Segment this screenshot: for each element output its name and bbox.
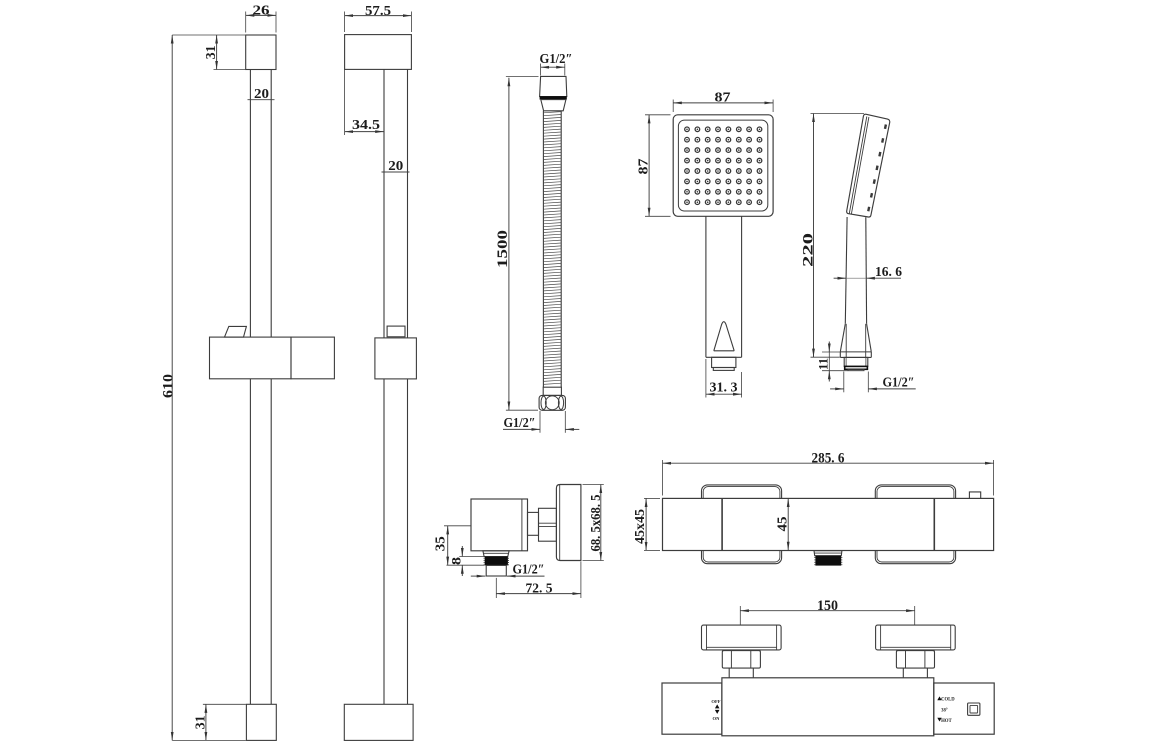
- svg-text:HOT: HOT: [941, 719, 952, 724]
- svg-text:87: 87: [636, 159, 651, 175]
- svg-text:38°: 38°: [941, 708, 948, 713]
- svg-text:1500: 1500: [495, 230, 511, 268]
- svg-text:G1/2″: G1/2″: [504, 416, 536, 431]
- svg-text:285. 6: 285. 6: [812, 450, 845, 466]
- svg-text:G1/2″: G1/2″: [883, 375, 915, 390]
- svg-text:45x45: 45x45: [633, 509, 648, 544]
- svg-text:G1/2″: G1/2″: [540, 52, 573, 67]
- svg-text:11: 11: [816, 358, 831, 370]
- svg-text:150: 150: [817, 598, 838, 614]
- svg-text:45: 45: [776, 517, 791, 532]
- svg-text:20: 20: [388, 159, 403, 174]
- svg-text:87: 87: [715, 91, 731, 106]
- svg-text:16. 6: 16. 6: [875, 265, 902, 280]
- svg-text:ON: ON: [713, 716, 721, 721]
- svg-text:220: 220: [800, 233, 816, 267]
- svg-text:57.5: 57.5: [365, 4, 391, 19]
- svg-text:8: 8: [449, 556, 464, 565]
- svg-text:20: 20: [254, 87, 269, 102]
- svg-text:G1/2″: G1/2″: [513, 563, 545, 578]
- svg-text:34.5: 34.5: [352, 118, 380, 133]
- svg-text:35: 35: [434, 536, 449, 551]
- svg-text:26: 26: [253, 4, 270, 19]
- svg-text:31: 31: [194, 715, 209, 729]
- svg-text:72. 5: 72. 5: [526, 582, 553, 597]
- svg-text:COLD: COLD: [941, 698, 955, 703]
- svg-text:31: 31: [204, 45, 219, 59]
- svg-text:31. 3: 31. 3: [710, 381, 738, 396]
- svg-text:OFF: OFF: [711, 699, 720, 704]
- svg-text:68. 5x68. 5: 68. 5x68. 5: [589, 495, 604, 552]
- svg-text:610: 610: [161, 374, 177, 398]
